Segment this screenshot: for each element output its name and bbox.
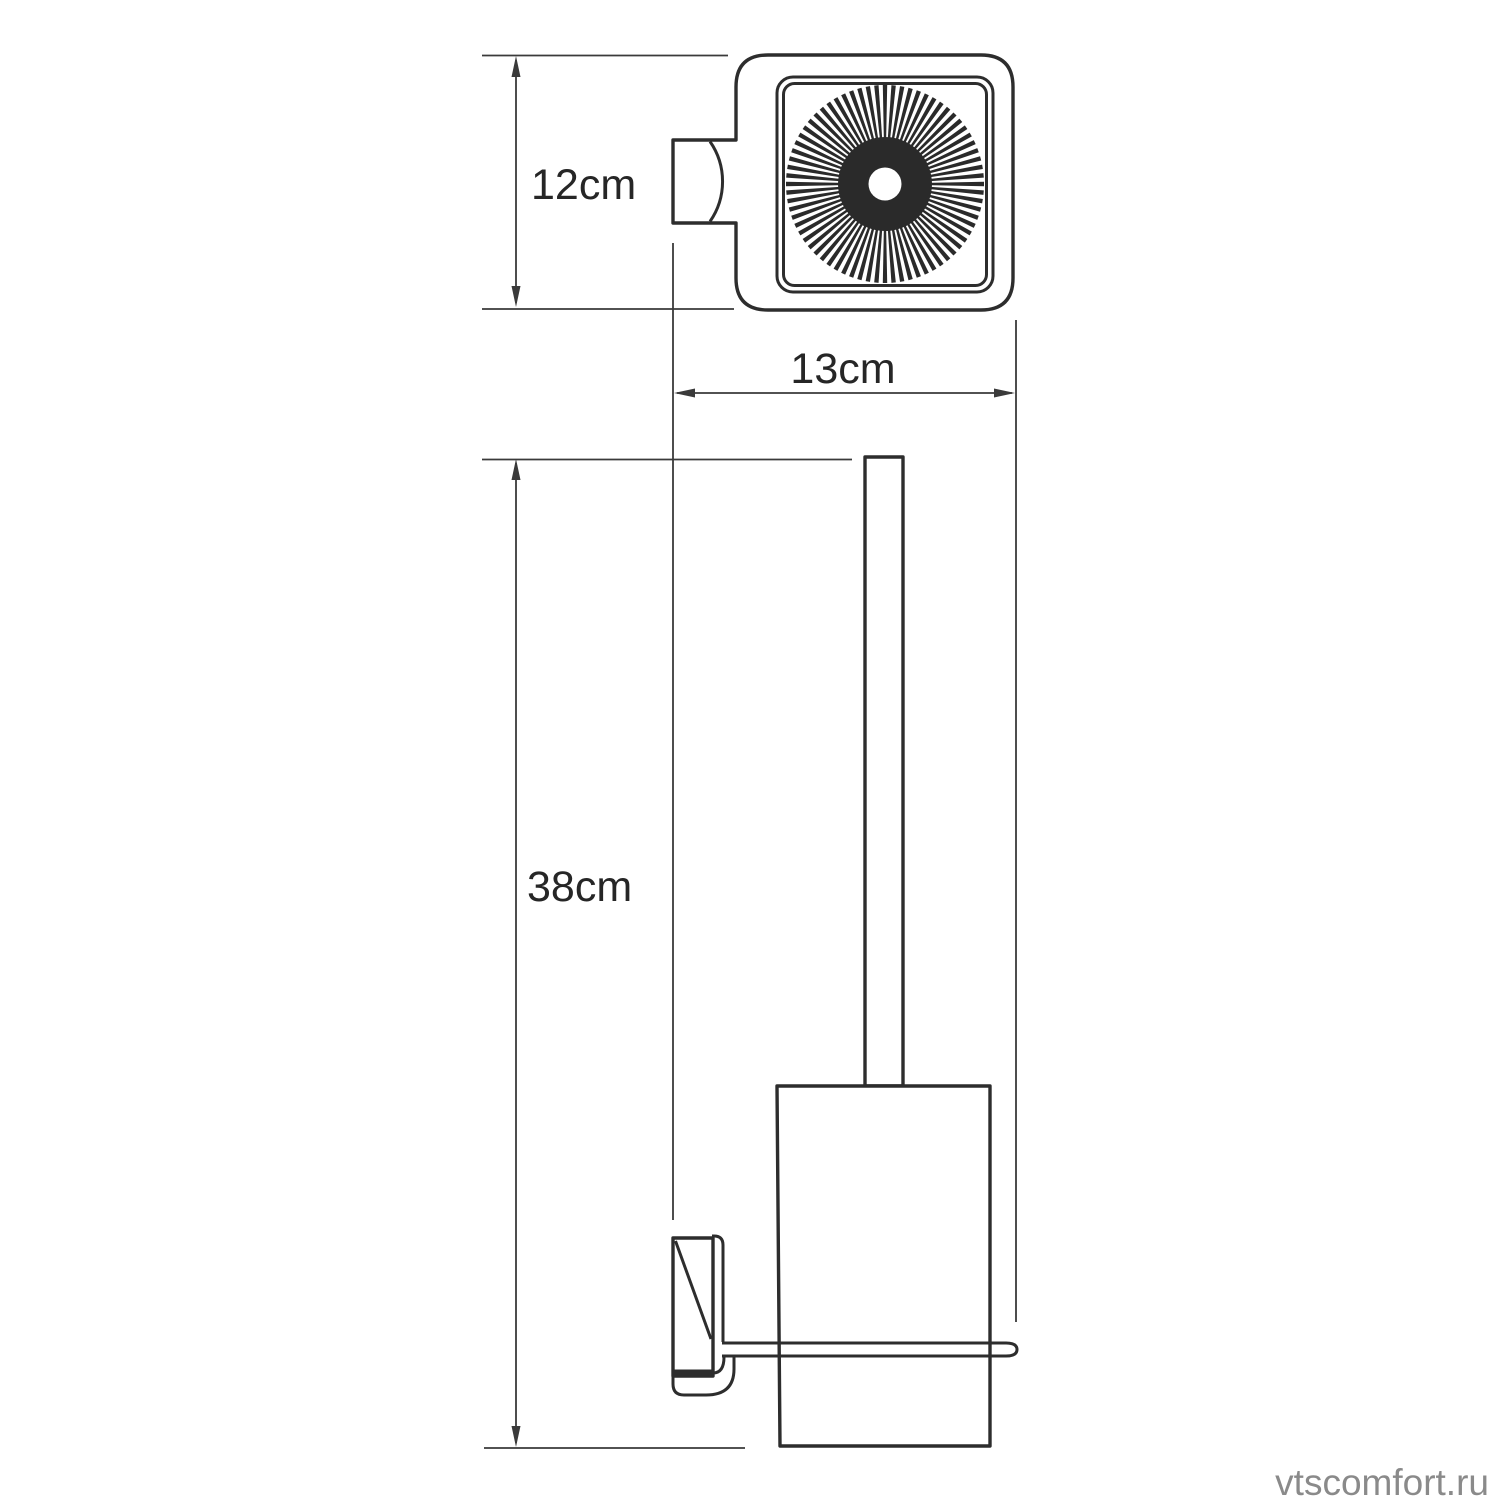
- brush-handle: [865, 457, 903, 1086]
- wall-bracket-arc: [710, 142, 723, 222]
- brush-core-hole: [869, 168, 902, 201]
- watermark: vtscomfort.ru: [1275, 1462, 1489, 1503]
- arrowhead-up: [512, 56, 521, 77]
- top-view: [673, 55, 1013, 310]
- dimension-label-13cm: 13cm: [790, 345, 895, 393]
- wall-plate: [673, 1238, 713, 1376]
- arrowhead-left: [674, 389, 695, 398]
- toilet-brush-holder-dimension-diagram: 12cm 13cm 38cm vtscomfort.ru: [0, 0, 1503, 1504]
- arrowhead-down: [512, 1426, 521, 1447]
- dimension-label-12cm: 12cm: [531, 161, 636, 209]
- arrowhead-right: [994, 389, 1015, 398]
- arrowhead-down: [512, 286, 521, 307]
- dimension-label-38cm: 38cm: [527, 863, 632, 911]
- arrowhead-up: [512, 459, 521, 480]
- glass-cup: [777, 1086, 990, 1446]
- front-view: [673, 457, 1017, 1446]
- dimension-12cm: 12cm: [482, 56, 734, 310]
- technical-drawing-canvas: 12cm 13cm 38cm vtscomfort.ru: [0, 0, 1503, 1504]
